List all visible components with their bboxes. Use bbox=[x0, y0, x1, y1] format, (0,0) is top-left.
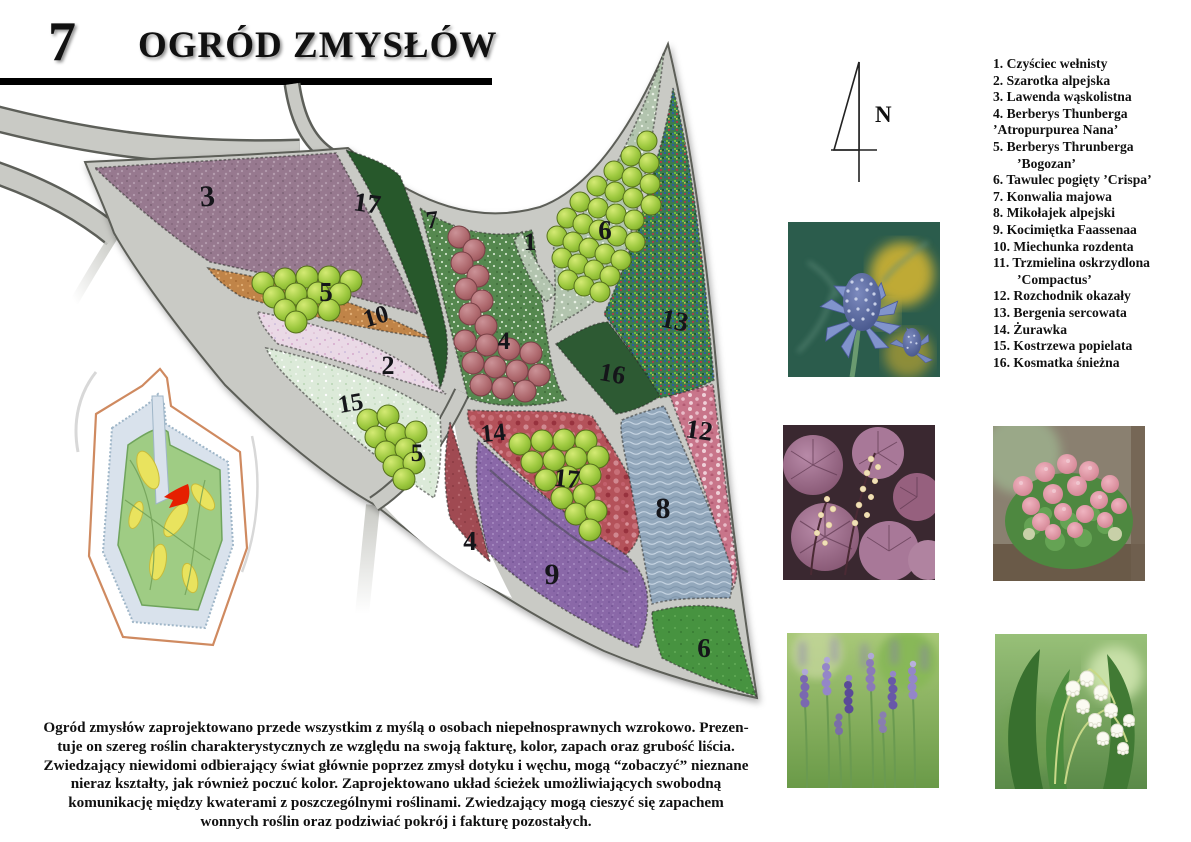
photo-sedum bbox=[993, 426, 1145, 581]
plant-list-item: ’Bogozan’ bbox=[993, 156, 1191, 173]
paragraph-line: nieraz kształty, jak również poczuć kolo… bbox=[33, 775, 759, 794]
shrub-symbol bbox=[604, 161, 624, 181]
shrub-symbol bbox=[622, 167, 642, 187]
paragraph-line: komunikację między kwaterami z poszczegó… bbox=[33, 794, 759, 813]
plan-bed-label-6: 6 bbox=[598, 215, 612, 245]
plant-list-item: 9. Kocimiętka Faassenaa bbox=[993, 222, 1191, 239]
plan-bed-label-4: 4 bbox=[463, 526, 477, 556]
shrub-symbol bbox=[625, 232, 645, 252]
garden-plan: 3177165101342161512145178496 bbox=[0, 0, 780, 720]
photo-lavender bbox=[787, 633, 939, 788]
barberry-shrub-symbol bbox=[514, 380, 536, 402]
paragraph-line: Zwiedzający niewidomi odbierający świat … bbox=[33, 757, 759, 776]
plan-bed-label-17: 17 bbox=[352, 186, 383, 219]
plant-list-item: 16. Kosmatka śnieżna bbox=[993, 355, 1191, 372]
plan-bed-label-2: 2 bbox=[382, 351, 395, 380]
barberry-shrub-symbol bbox=[470, 374, 492, 396]
shrub-symbol bbox=[621, 146, 641, 166]
shrub-symbol bbox=[623, 188, 643, 208]
plant-list-item: 11. Trzmielina oskrzydlona bbox=[993, 255, 1191, 272]
plan-bed-label-4: 4 bbox=[498, 328, 511, 355]
plant-list: 1. Czyściec wełnisty2. Szarotka alpejska… bbox=[993, 56, 1191, 371]
plan-bed-label-14: 14 bbox=[479, 419, 507, 449]
plan-bed-label-8: 8 bbox=[656, 492, 671, 525]
plant-list-item: 3. Lawenda wąskolistna bbox=[993, 89, 1191, 106]
garden-plan-svg: 3177165101342161512145178496 bbox=[0, 0, 780, 720]
barberry-shrub-symbol bbox=[476, 334, 498, 356]
plant-list-item: 13. Bergenia sercowata bbox=[993, 305, 1191, 322]
plant-list-item: 7. Konwalia majowa bbox=[993, 189, 1191, 206]
plan-bed-label-9: 9 bbox=[545, 558, 560, 591]
paragraph-line: Ogród zmysłów zaprojektowano przede wszy… bbox=[33, 719, 759, 738]
barberry-shrub-symbol bbox=[492, 377, 514, 399]
shrub-symbol bbox=[579, 519, 601, 541]
plant-list-item: 6. Tawulec pogięty ’Crispa’ bbox=[993, 172, 1191, 189]
north-label: N bbox=[875, 102, 892, 127]
plant-list-item: 4. Berberys Thunberga bbox=[993, 106, 1191, 123]
plan-bed-label-5: 5 bbox=[411, 440, 424, 467]
photo-heuchera bbox=[783, 425, 935, 580]
shrub-symbol bbox=[639, 153, 659, 173]
plan-bed-label-17: 17 bbox=[552, 463, 581, 495]
shrub-symbol bbox=[624, 210, 644, 230]
plant-list-item: 8. Mikołajek alpejski bbox=[993, 205, 1191, 222]
plant-list-item: 1. Czyściec wełnisty bbox=[993, 56, 1191, 73]
plant-list-item: 2. Szarotka alpejska bbox=[993, 73, 1191, 90]
paragraph-line: wonnych roślin oraz podziwiać pokrój i f… bbox=[33, 813, 759, 832]
shrub-symbol bbox=[531, 430, 553, 452]
plant-list-item: 12. Rozchodnik okazały bbox=[993, 288, 1191, 305]
barberry-shrub-symbol bbox=[462, 352, 484, 374]
plant-list-item: ’Atropurpurea Nana’ bbox=[993, 122, 1191, 139]
description-paragraph: Ogród zmysłów zaprojektowano przede wszy… bbox=[33, 719, 759, 832]
barberry-shrub-symbol bbox=[484, 356, 506, 378]
plant-list-item: 14. Żurawka bbox=[993, 322, 1191, 339]
photo-lily-of-the-valley bbox=[995, 634, 1147, 789]
shrub-symbol bbox=[640, 174, 660, 194]
shrub-symbol bbox=[285, 311, 307, 333]
photo-sea-holly bbox=[788, 222, 940, 377]
north-arrow-glyph bbox=[831, 62, 877, 182]
plan-bed-label-1: 1 bbox=[524, 229, 537, 256]
plant-list-item: 5. Berberys Thrunberga bbox=[993, 139, 1191, 156]
north-arrow: N bbox=[823, 56, 903, 188]
plan-bed-label-3: 3 bbox=[199, 180, 216, 214]
plan-bed-label-6: 6 bbox=[697, 633, 711, 663]
barberry-shrub-symbol bbox=[454, 330, 476, 352]
shrub-symbol bbox=[587, 176, 607, 196]
paragraph-line: tuje on szereg roślin charakterystycznyc… bbox=[33, 738, 759, 757]
plant-list-item: 15. Kostrzewa popielata bbox=[993, 338, 1191, 355]
inset-locator-map bbox=[76, 369, 257, 645]
shrub-symbol bbox=[641, 195, 661, 215]
shrub-symbol bbox=[637, 131, 657, 151]
plant-list-item: ’Compactus’ bbox=[993, 272, 1191, 289]
plan-bed-label-5: 5 bbox=[319, 277, 333, 307]
plan-bed-label-12: 12 bbox=[684, 413, 715, 446]
page: 7 OGRÓD ZMYSŁÓW bbox=[0, 0, 1191, 842]
plant-list-item: 10. Miechunka rozdenta bbox=[993, 239, 1191, 256]
barberry-shrub-symbol bbox=[520, 342, 542, 364]
shrub-symbol bbox=[521, 451, 543, 473]
plan-bed-label-15: 15 bbox=[336, 388, 365, 419]
shrub-symbol bbox=[393, 468, 415, 490]
shrub-symbol bbox=[570, 192, 590, 212]
shrub-symbol bbox=[579, 464, 601, 486]
plan-bed-label-16: 16 bbox=[597, 357, 628, 390]
shrub-symbol bbox=[605, 182, 625, 202]
shrub-symbol bbox=[590, 282, 610, 302]
